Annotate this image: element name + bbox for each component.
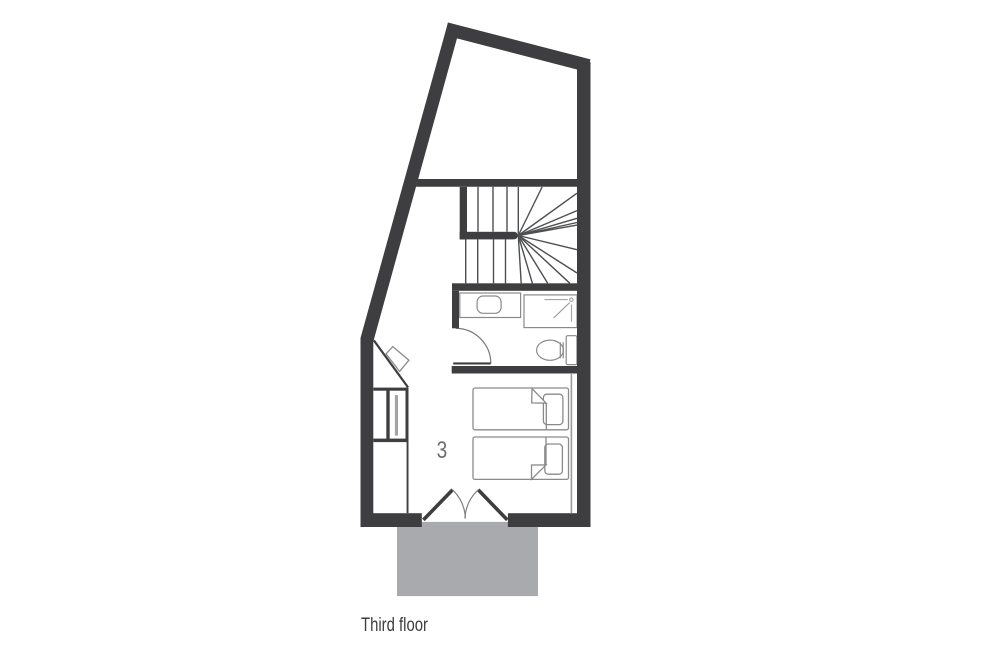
svg-text:Third floor: Third floor bbox=[361, 615, 429, 636]
svg-text:3: 3 bbox=[437, 437, 448, 464]
